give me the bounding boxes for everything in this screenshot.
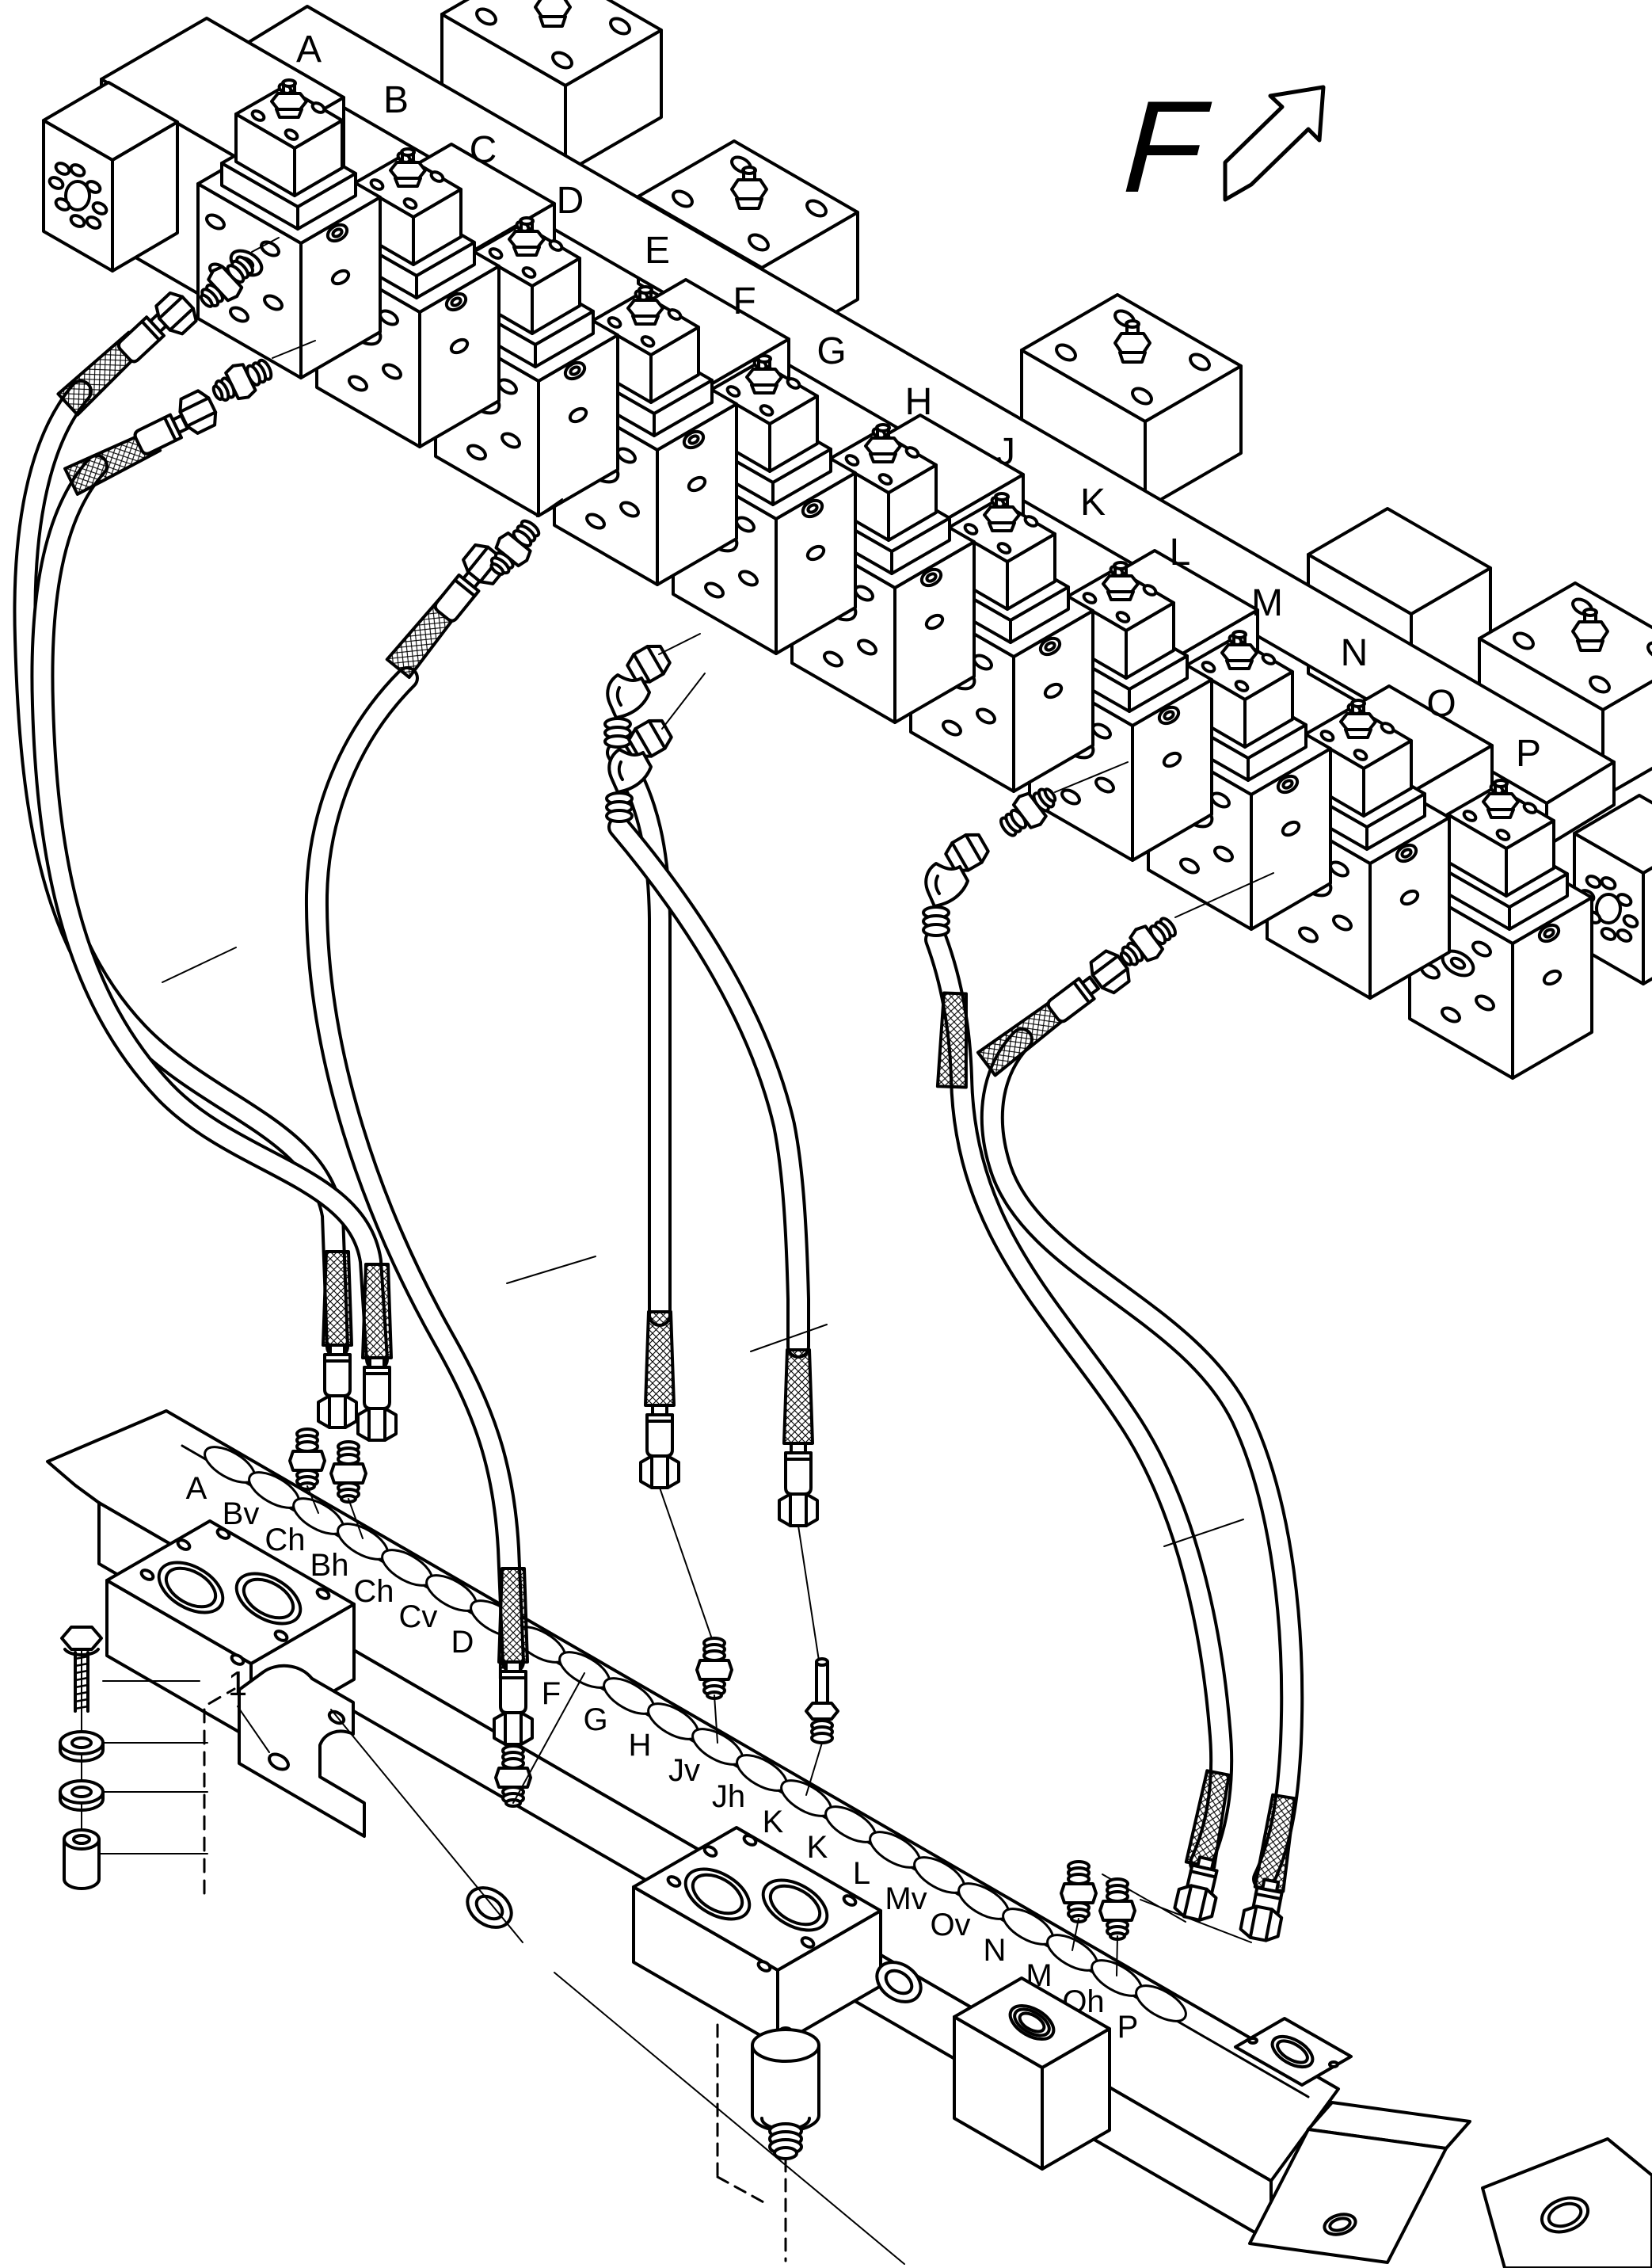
bottom-port-label: D bbox=[451, 1625, 474, 1660]
view-label: F bbox=[1108, 73, 1224, 219]
diagram-page: A B C D E F G H J K L M N O P F bbox=[0, 0, 1652, 2268]
view-arrow-icon bbox=[1225, 87, 1323, 200]
top-port-label: P bbox=[1516, 733, 1541, 775]
top-port-label: F bbox=[733, 280, 756, 322]
bottom-port-label: P bbox=[1117, 2010, 1139, 2045]
bottom-port-label: G bbox=[583, 1702, 607, 1737]
bottom-port-label: N bbox=[984, 1933, 1007, 1968]
top-port-label: K bbox=[1080, 482, 1106, 524]
top-port-label: H bbox=[905, 381, 933, 423]
bottom-port-label: Bv bbox=[223, 1496, 260, 1531]
bottom-port-label: Bh bbox=[310, 1548, 349, 1583]
bottom-port-label: Ch bbox=[265, 1523, 305, 1557]
stud-fitting bbox=[806, 1659, 838, 1743]
parts-diagram: A B C D E F G H J K L M N O P F bbox=[0, 0, 1652, 2268]
bottom-port-label: Jh bbox=[712, 1779, 745, 1814]
top-port-label: D bbox=[557, 180, 584, 222]
top-port-label: B bbox=[383, 79, 409, 121]
bottom-port-label: Ov bbox=[930, 1908, 970, 1942]
bottom-port-label: A bbox=[186, 1471, 207, 1506]
bottom-port-label: K bbox=[807, 1830, 828, 1865]
bottom-manifold-rail bbox=[48, 1411, 1338, 2242]
bottom-port-label: K bbox=[763, 1805, 784, 1839]
bottom-port-label: F bbox=[542, 1676, 561, 1711]
top-port-label: G bbox=[816, 330, 846, 372]
breather-cap bbox=[718, 2025, 819, 2261]
top-port-label: N bbox=[1341, 632, 1368, 674]
top-port-label: E bbox=[645, 230, 670, 272]
bottom-port-label: Mv bbox=[885, 1881, 927, 1916]
hose-5 bbox=[619, 827, 798, 1347]
corner-end-block bbox=[1483, 2139, 1652, 2268]
bottom-port-label: Jv bbox=[668, 1753, 700, 1788]
top-port-label: C bbox=[470, 129, 497, 171]
bottom-port-label: L bbox=[853, 1856, 870, 1891]
hose-6 bbox=[936, 940, 1221, 1863]
top-port-label: L bbox=[1170, 532, 1191, 574]
top-port-label: A bbox=[296, 29, 322, 71]
spacer-bushing bbox=[64, 1830, 99, 1889]
hardware-leader-ticks bbox=[101, 1681, 207, 1854]
top-port-label: J bbox=[996, 431, 1015, 473]
bottom-port-label: H bbox=[629, 1728, 652, 1763]
bottom-port-label: Ch bbox=[353, 1574, 394, 1609]
bottom-port-label: Cv bbox=[399, 1599, 438, 1634]
top-port-label: M bbox=[1251, 582, 1283, 624]
view-callout: F bbox=[1108, 73, 1323, 219]
top-port-label: O bbox=[1426, 683, 1456, 725]
callout-1-label: 1 bbox=[228, 1664, 247, 1703]
